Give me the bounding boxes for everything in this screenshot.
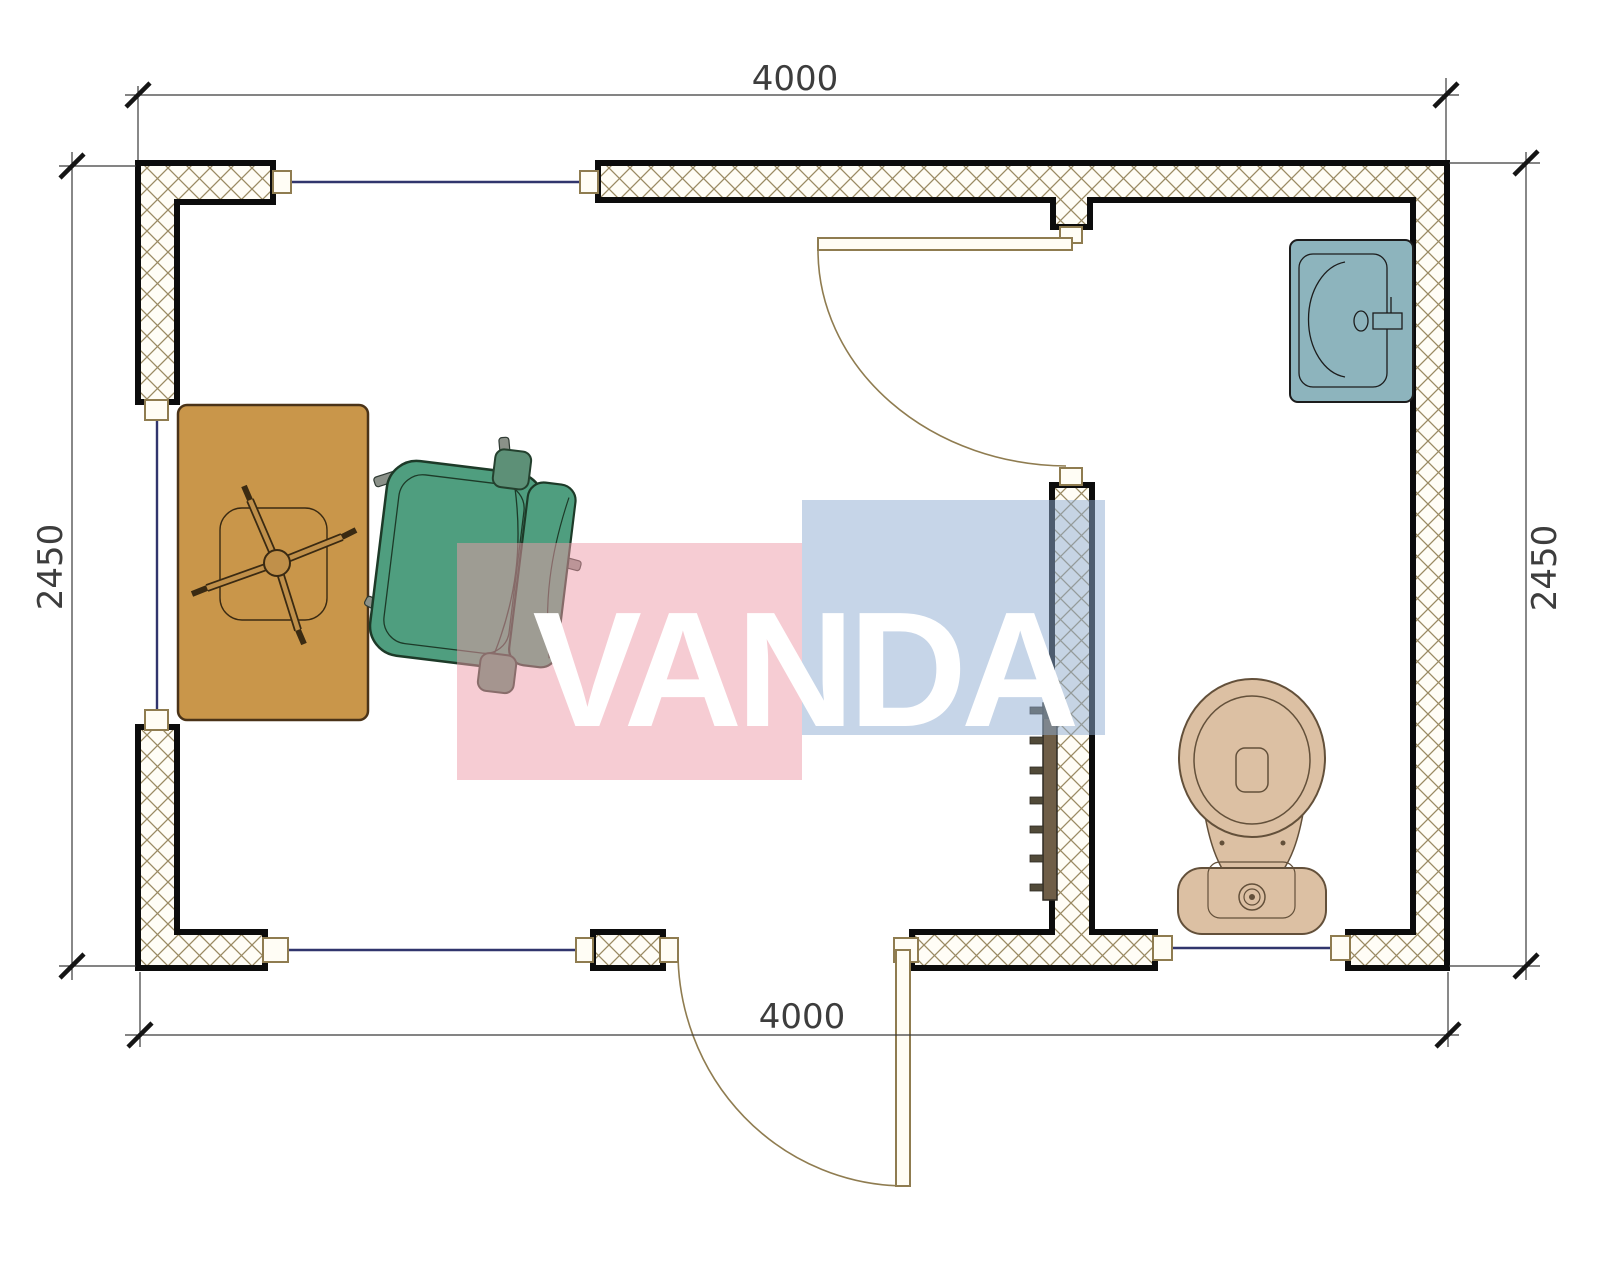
jamb: [580, 171, 598, 193]
dimension-top: 4000: [125, 59, 1459, 160]
dimension-right: 2450: [1449, 151, 1565, 980]
wall-bottom-pier: [593, 932, 663, 968]
entry-door-leaf: [896, 950, 910, 1186]
entry-door-swing-arc: [678, 950, 906, 1186]
jamb: [145, 710, 168, 730]
toilet-bolt-right: [1281, 841, 1286, 846]
desk: [178, 405, 368, 720]
jamb: [660, 938, 678, 962]
toilet: [1178, 679, 1326, 934]
dimension-bottom-value: 4000: [759, 997, 846, 1037]
star-base-hub: [264, 550, 290, 576]
toilet-bowl: [1179, 679, 1325, 837]
jamb: [145, 400, 168, 420]
jamb: [263, 938, 288, 962]
jamb: [1331, 936, 1350, 960]
toilet-tank: [1178, 868, 1326, 934]
jamb: [273, 171, 291, 193]
bathroom-door-leaf: [818, 238, 1072, 250]
toilet-button-center: [1249, 894, 1255, 900]
floor-plan-canvas: VANDA 4000 4000 2450: [0, 0, 1600, 1280]
dimension-top-value: 4000: [752, 59, 839, 99]
wall-bottom-left-corner: [138, 727, 265, 968]
dimension-right-value: 2450: [1525, 525, 1565, 612]
sink: [1290, 240, 1413, 402]
bathroom-door-swing-arc: [818, 250, 1066, 466]
jamb: [1060, 468, 1082, 485]
sink-faucet: [1373, 313, 1402, 329]
chair-armrest-top: [492, 448, 532, 490]
watermark-text: VANDA: [533, 578, 1077, 761]
dimension-left: 2450: [31, 152, 136, 980]
toilet-bolt-left: [1220, 841, 1225, 846]
floor-plan-svg: VANDA 4000 4000 2450: [0, 0, 1600, 1280]
wall-top-left-corner: [138, 163, 273, 402]
jamb: [576, 938, 593, 962]
dimension-bottom: 4000: [125, 972, 1460, 1047]
jamb: [1153, 936, 1172, 960]
dimension-left-value: 2450: [31, 524, 71, 611]
